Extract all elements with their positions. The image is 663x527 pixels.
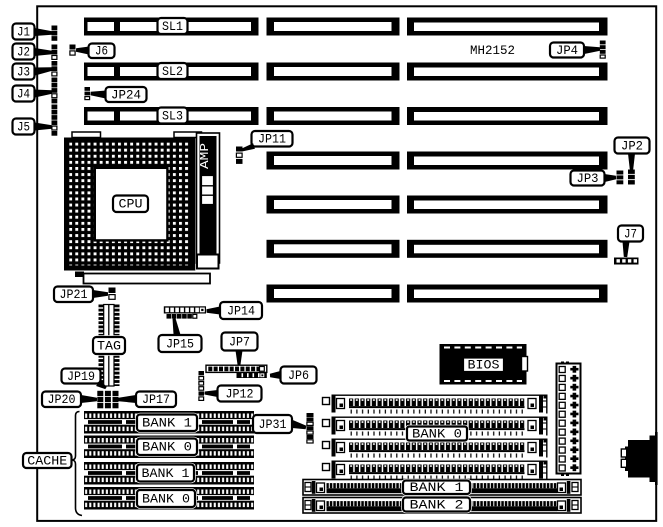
svg-text:J4: J4	[17, 86, 30, 101]
svg-text:BANK 1: BANK 1	[410, 480, 464, 495]
svg-text:SL2: SL2	[162, 64, 183, 79]
svg-text:BANK 1: BANK 1	[142, 416, 192, 431]
svg-text:CACHE: CACHE	[27, 453, 67, 468]
svg-text:CPU: CPU	[119, 197, 143, 212]
svg-text:BANK 0: BANK 0	[142, 440, 192, 455]
svg-text:JP3: JP3	[577, 171, 599, 186]
svg-text:JP21: JP21	[60, 287, 88, 302]
svg-text:BIOS: BIOS	[468, 358, 500, 373]
svg-text:JP11: JP11	[258, 132, 286, 147]
svg-text:JP15: JP15	[166, 336, 194, 351]
svg-text:J5: J5	[17, 119, 30, 134]
svg-text:J1: J1	[17, 24, 30, 39]
svg-text:BANK 0: BANK 0	[412, 426, 462, 441]
svg-text:BANK 1: BANK 1	[142, 466, 190, 481]
svg-text:MH2152: MH2152	[470, 44, 515, 58]
svg-text:BANK 0: BANK 0	[142, 491, 190, 506]
svg-text:J2: J2	[17, 44, 30, 59]
svg-text:SL1: SL1	[162, 19, 183, 34]
svg-text:JP31: JP31	[259, 417, 287, 432]
svg-text:JP20: JP20	[48, 392, 76, 407]
svg-text:BANK 2: BANK 2	[410, 497, 464, 512]
svg-text:JP2: JP2	[621, 138, 643, 153]
svg-text:JP14: JP14	[227, 303, 255, 318]
svg-text:TAG: TAG	[97, 338, 121, 353]
svg-text:JP17: JP17	[142, 392, 170, 407]
svg-text:JP7: JP7	[229, 334, 250, 349]
svg-text:JP19: JP19	[67, 369, 95, 384]
svg-text:JP4: JP4	[556, 43, 578, 58]
svg-text:J7: J7	[624, 226, 637, 241]
svg-text:JP24: JP24	[111, 87, 141, 102]
svg-text:AMP: AMP	[198, 143, 212, 169]
svg-text:JP6: JP6	[288, 368, 309, 383]
svg-text:JP12: JP12	[226, 386, 254, 401]
svg-text:SL3: SL3	[162, 108, 183, 123]
svg-text:J3: J3	[17, 64, 30, 79]
svg-text:J6: J6	[95, 44, 108, 59]
